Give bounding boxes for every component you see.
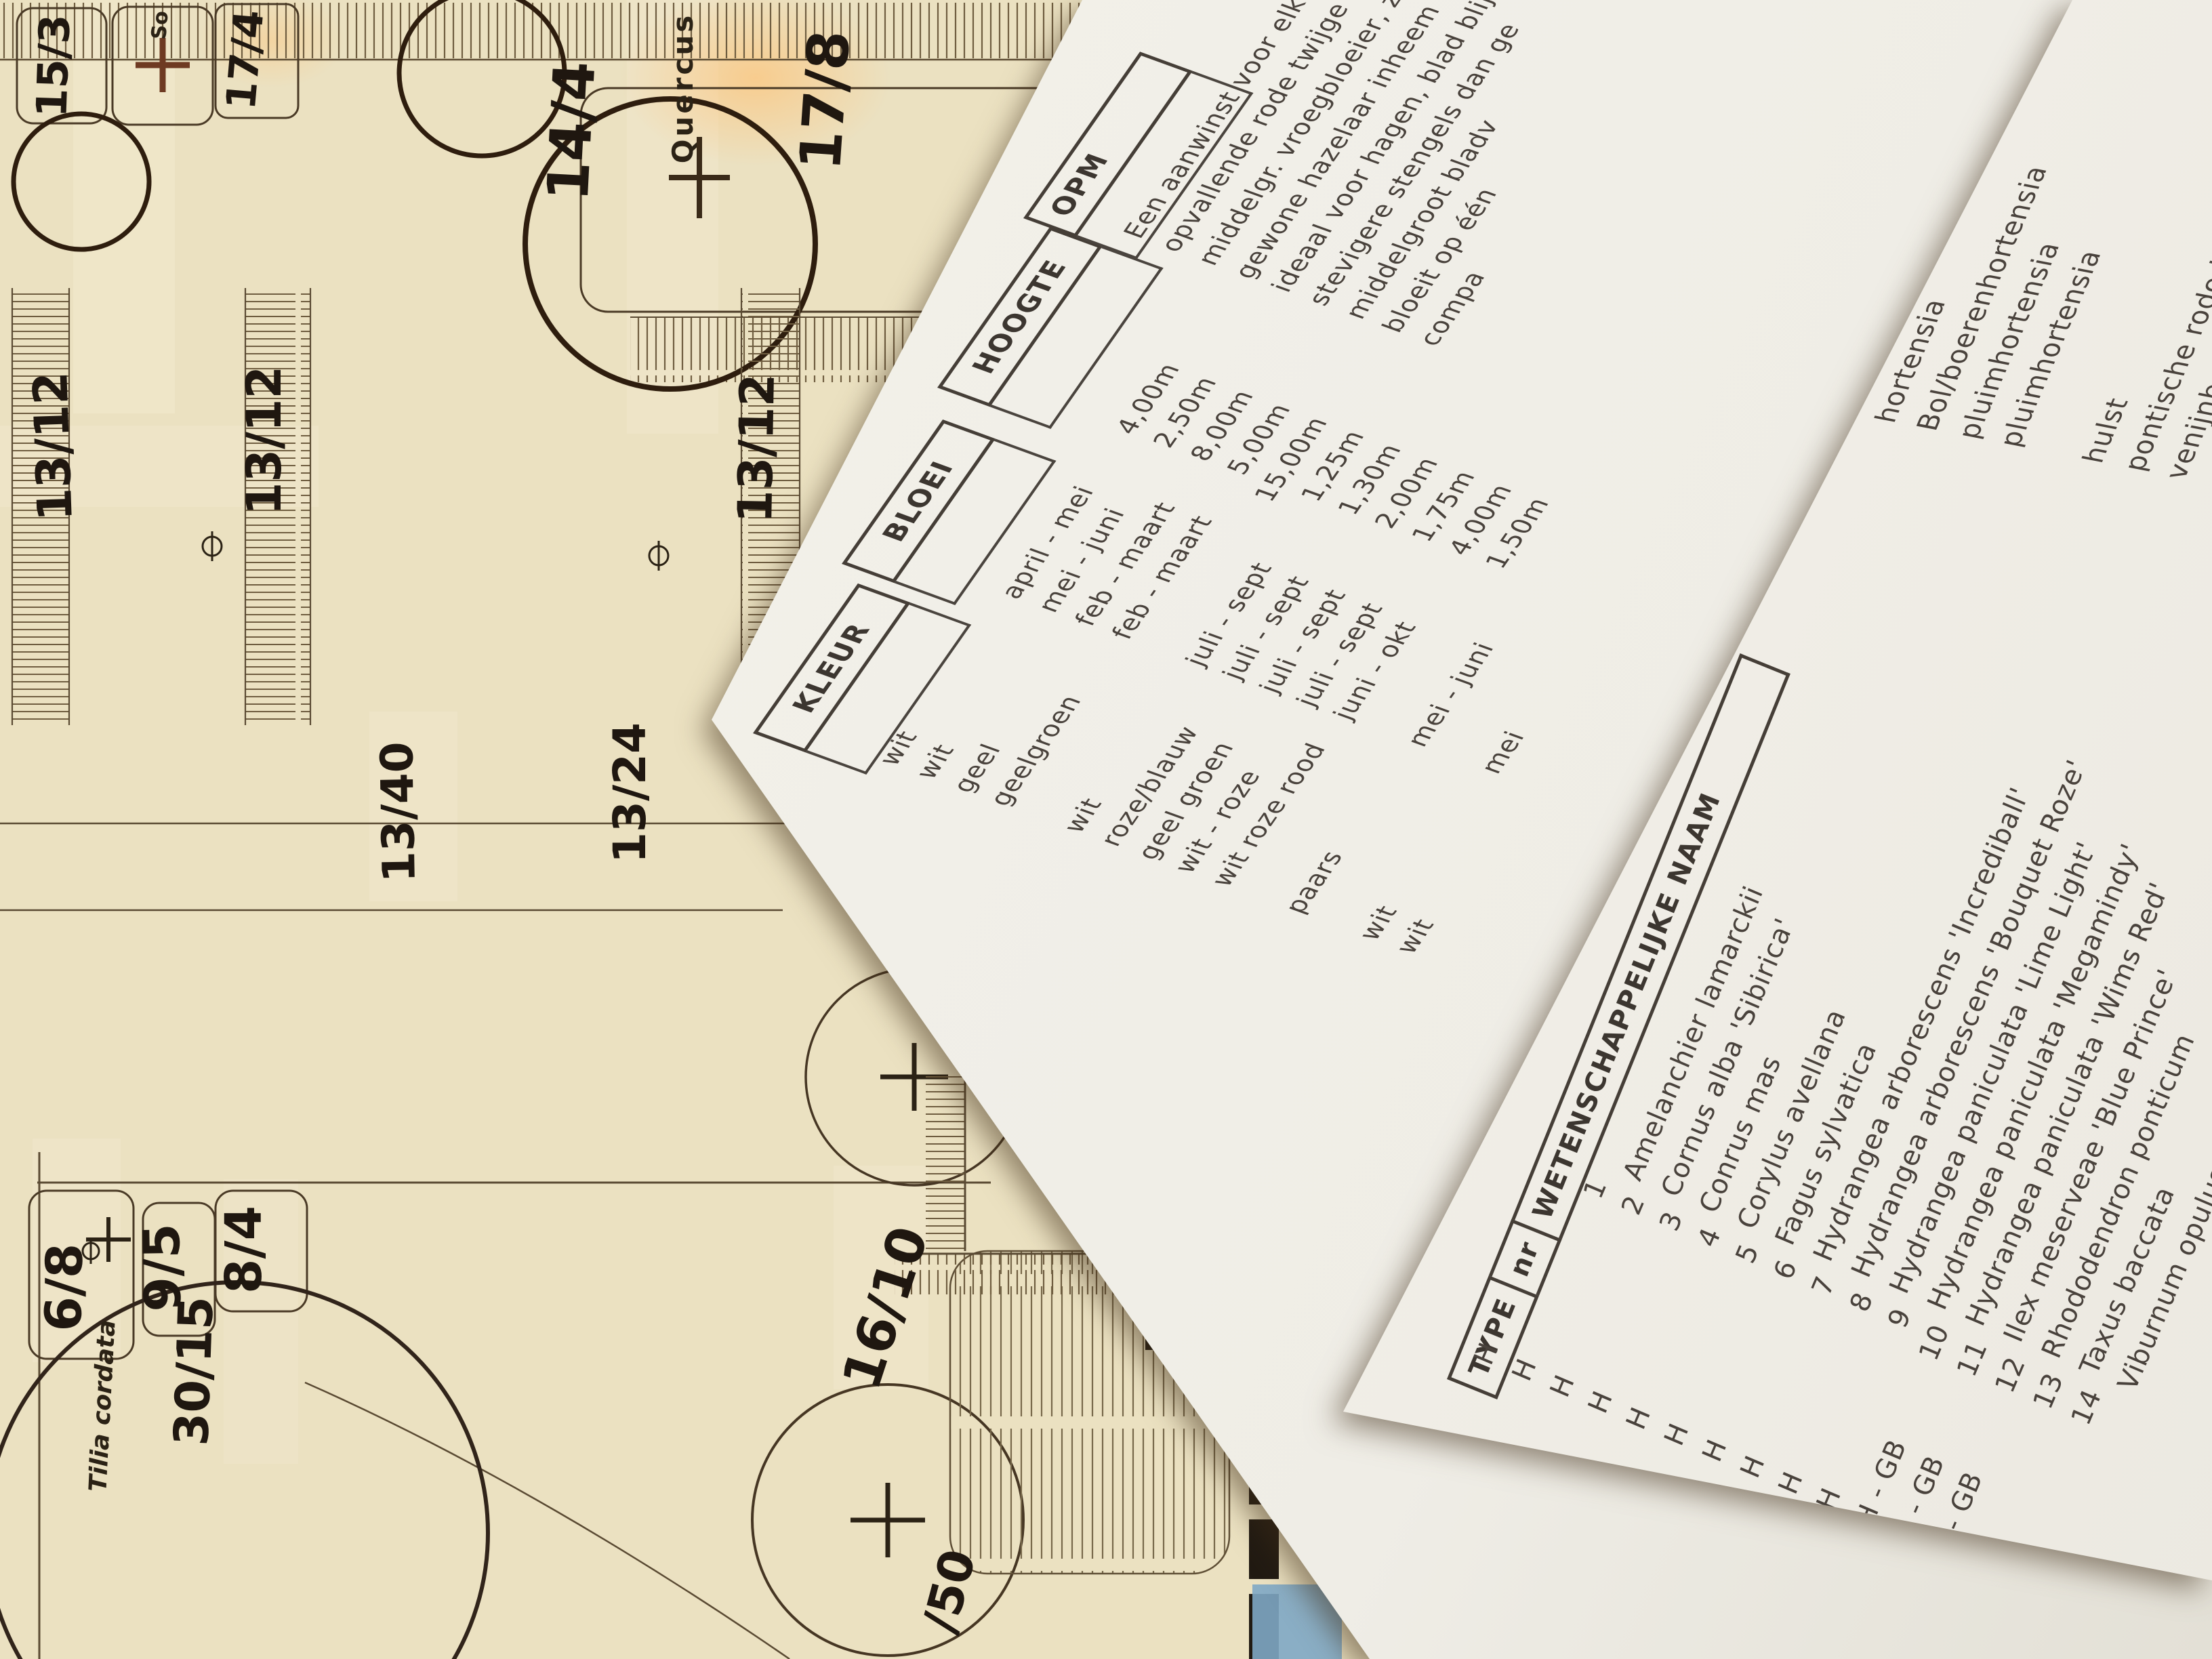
grass-hatch-patch [950,1251,1229,1574]
plot-label: 15/3 [26,14,79,119]
plot-label: 30/15 [163,1296,224,1447]
species-note: Quercus [666,13,699,164]
tick-band-L [895,1072,1246,1294]
photo-of-plan-and-plant-lists: 15/3 17/4 14/4 17/8 13/12 13/12 13/12 13… [0,0,2212,1659]
plot-label: 14/4 [535,60,609,203]
hedge-label: 13/12 [727,373,785,524]
hedge-label: 13/12 [22,371,83,522]
plot-label: 6/8 [35,1243,94,1332]
plot-label: 13/24 [604,722,656,863]
blue-tape-patches [1252,1490,2091,1659]
landscape-plan-drawing: 15/3 17/4 14/4 17/8 13/12 13/12 13/12 13… [0,0,2212,1659]
species-note: So [147,10,173,41]
plot-label: 13/40 [371,741,426,883]
plot-label: 8/4 [215,1206,273,1294]
plot-label: 17/8 [787,28,863,172]
hedge-tick-band [630,317,1098,382]
hedge-label: 13/12 [237,366,292,515]
plot-label: 17/4 [218,8,274,112]
